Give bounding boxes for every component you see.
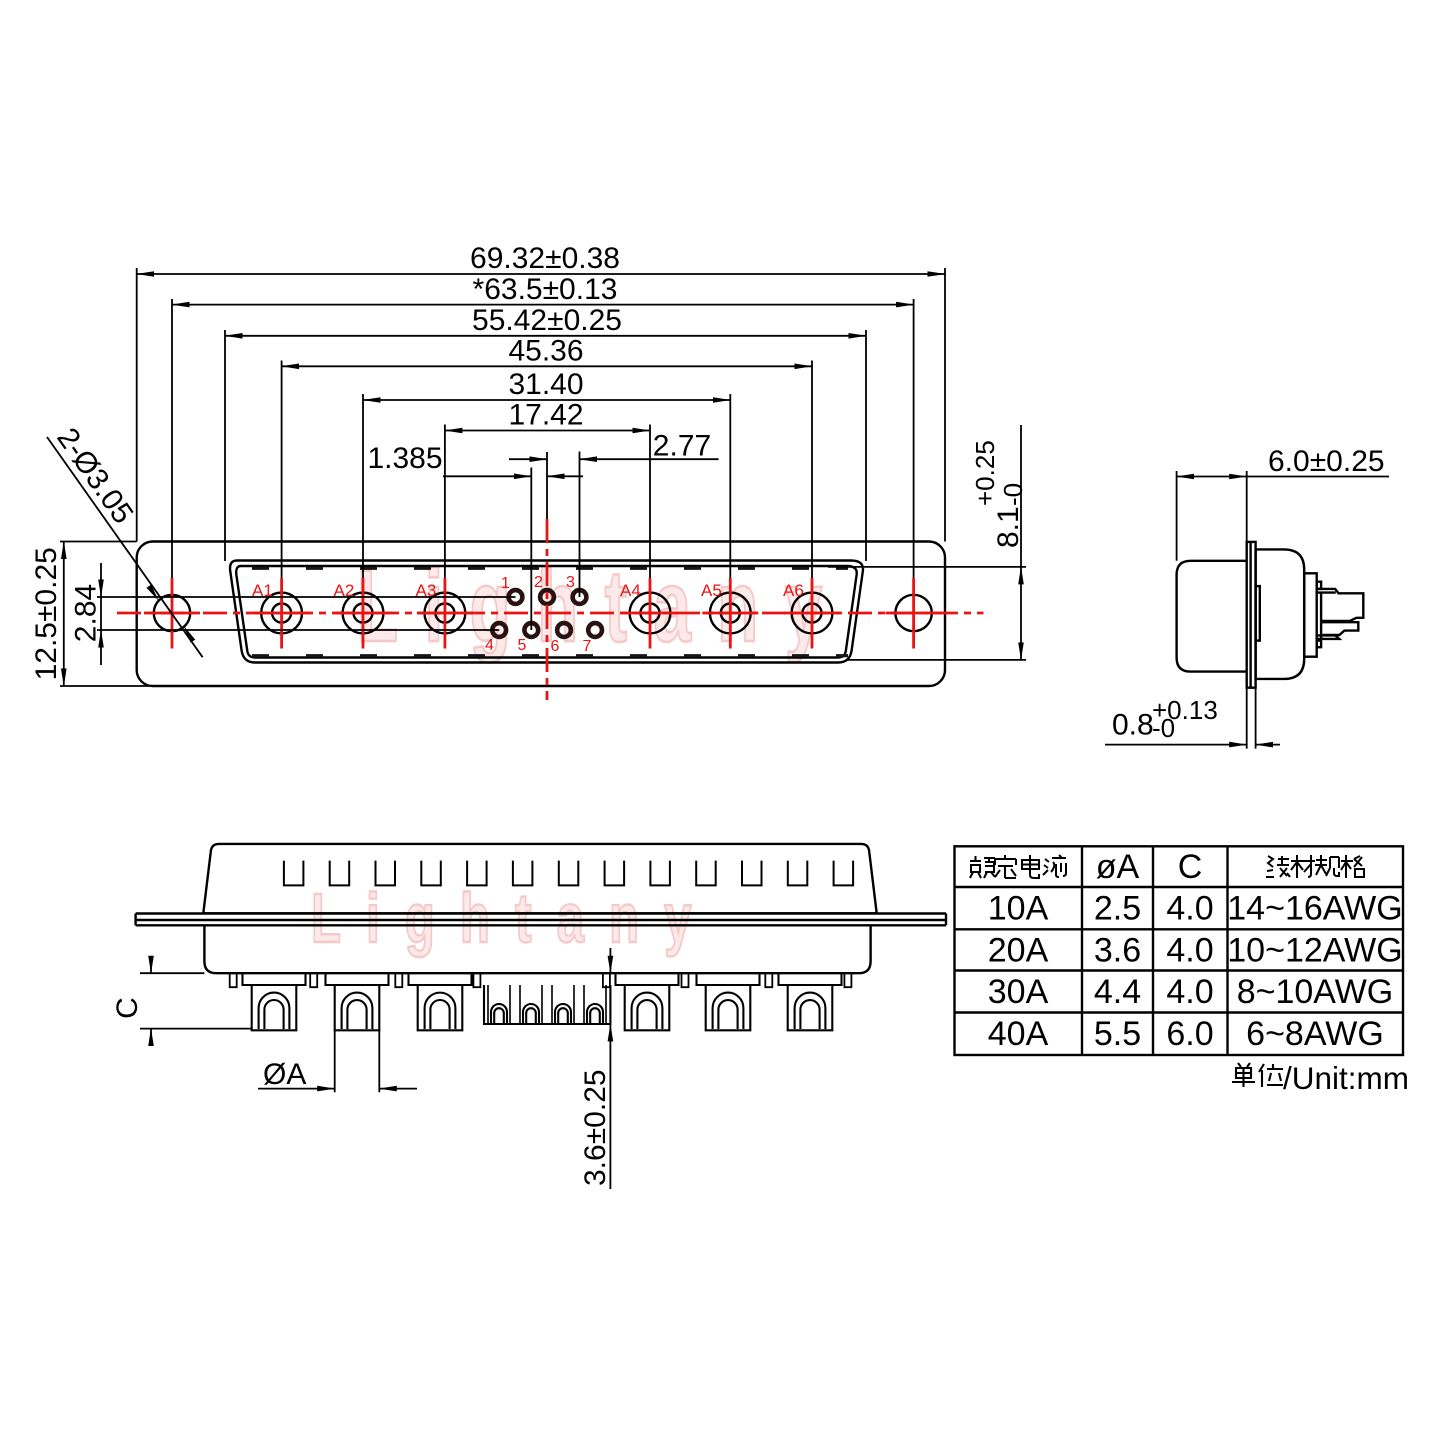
svg-text:69.32±0.38: 69.32±0.38 [470, 242, 620, 275]
svg-text:3.6±0.25: 3.6±0.25 [579, 1069, 612, 1186]
svg-text:+0.25: +0.25 [970, 440, 1000, 506]
svg-text:12.5±0.25: 12.5±0.25 [30, 547, 63, 680]
svg-text:4.0: 4.0 [1166, 973, 1213, 1011]
svg-text:10~12AWG: 10~12AWG [1227, 931, 1402, 969]
svg-text:1.385: 1.385 [367, 442, 442, 475]
svg-text:*63.5±0.13: *63.5±0.13 [473, 273, 618, 306]
svg-text:Lightany: Lightany [311, 878, 717, 957]
svg-text:A6: A6 [783, 581, 804, 600]
svg-text:20A: 20A [988, 931, 1049, 969]
svg-text:1: 1 [501, 575, 510, 592]
svg-text:55.42±0.25: 55.42±0.25 [472, 304, 622, 337]
svg-text:8~10AWG: 8~10AWG [1237, 973, 1394, 1011]
svg-text:/Unit:mm: /Unit:mm [1283, 1060, 1409, 1096]
svg-text:4: 4 [485, 637, 494, 654]
svg-text:2.84: 2.84 [70, 584, 103, 642]
svg-text:-0: -0 [998, 483, 1028, 506]
svg-text:3: 3 [566, 574, 575, 591]
svg-text:7: 7 [583, 638, 592, 655]
svg-text:A5: A5 [701, 581, 722, 600]
svg-text:30A: 30A [988, 973, 1049, 1011]
svg-text:6.0: 6.0 [1166, 1015, 1213, 1053]
svg-text:6: 6 [551, 638, 560, 655]
svg-text:31.40: 31.40 [508, 368, 583, 401]
svg-text:45.36: 45.36 [508, 335, 583, 368]
svg-text:C: C [111, 997, 144, 1019]
svg-text:6.0±0.25: 6.0±0.25 [1268, 445, 1385, 478]
svg-text:øA: øA [1096, 848, 1140, 886]
svg-text:ØA: ØA [263, 1058, 306, 1091]
svg-text:2: 2 [534, 574, 543, 591]
svg-text:17.42: 17.42 [508, 399, 583, 432]
svg-text:0.8: 0.8 [1112, 708, 1154, 741]
svg-text:-0: -0 [1152, 713, 1175, 743]
svg-text:2-Ø3.05: 2-Ø3.05 [50, 422, 139, 530]
svg-text:C: C [1178, 848, 1203, 886]
svg-text:3.6: 3.6 [1094, 931, 1141, 969]
svg-text:40A: 40A [988, 1015, 1049, 1053]
svg-text:4.4: 4.4 [1094, 973, 1141, 1011]
svg-text:A4: A4 [620, 581, 641, 600]
svg-text:2.5: 2.5 [1094, 890, 1141, 928]
svg-text:6~8AWG: 6~8AWG [1246, 1015, 1384, 1053]
svg-text:5: 5 [518, 637, 527, 654]
svg-text:8.1: 8.1 [992, 506, 1025, 548]
svg-text:14~16AWG: 14~16AWG [1227, 890, 1402, 928]
svg-text:10A: 10A [988, 890, 1049, 928]
svg-text:4.0: 4.0 [1166, 890, 1213, 928]
svg-text:5.5: 5.5 [1094, 1015, 1141, 1053]
svg-text:2.77: 2.77 [653, 430, 711, 463]
svg-text:4.0: 4.0 [1166, 931, 1213, 969]
